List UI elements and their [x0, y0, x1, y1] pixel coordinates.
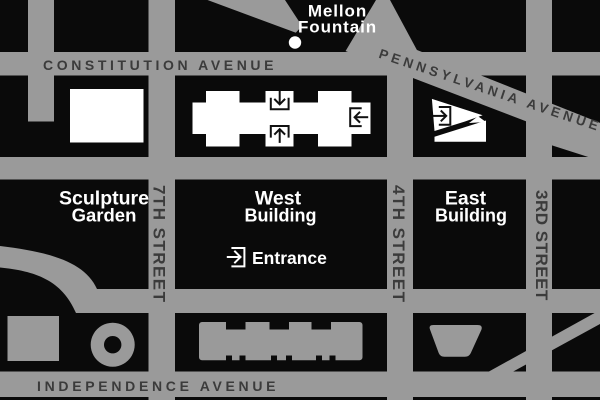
svg-text:Building: Building: [435, 206, 507, 226]
svg-text:7TH STREET: 7TH STREET: [150, 185, 169, 303]
svg-text:Fountain: Fountain: [298, 18, 377, 37]
svg-text:Building: Building: [245, 206, 317, 226]
svg-text:CONSTITUTION AVENUE: CONSTITUTION AVENUE: [43, 57, 277, 73]
svg-text:Garden: Garden: [72, 205, 137, 226]
svg-text:4TH STREET: 4TH STREET: [389, 185, 408, 303]
svg-text:INDEPENDENCE AVENUE: INDEPENDENCE AVENUE: [37, 378, 279, 394]
svg-text:Entrance: Entrance: [252, 248, 327, 268]
svg-text:3RD STREET: 3RD STREET: [532, 190, 551, 301]
